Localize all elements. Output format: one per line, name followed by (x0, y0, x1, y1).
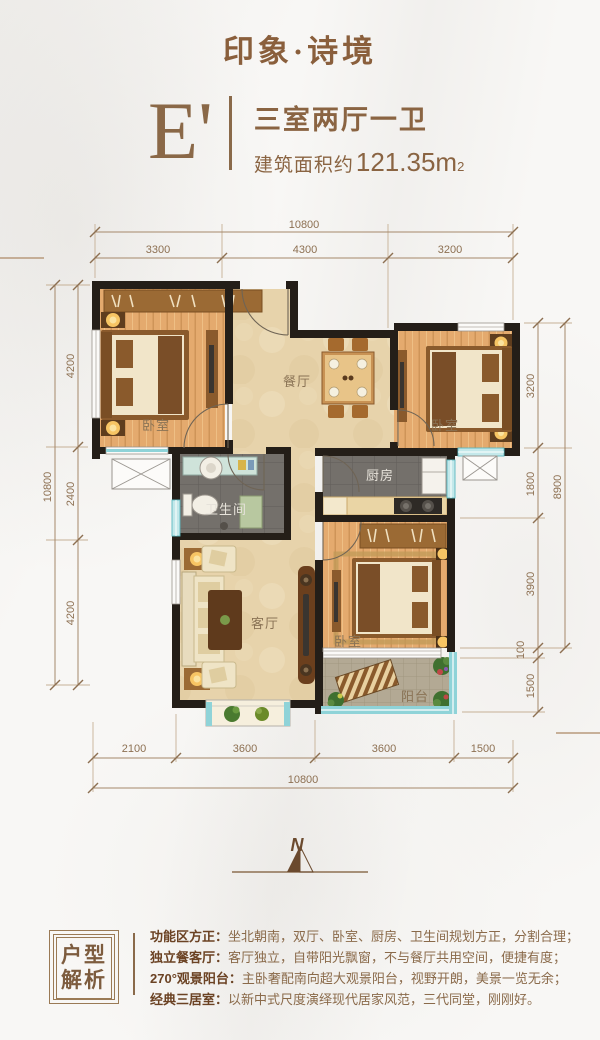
dim-top-seg3: 3200 (438, 244, 462, 256)
dim-right-seg5: 1500 (525, 674, 537, 698)
analysis-divider (133, 933, 135, 995)
analysis-item-label: 270°观景阳台： (150, 971, 242, 986)
floor-plan-svg: 10800 3300 4300 3200 10800 4200 (0, 200, 600, 900)
analysis-item-label: 经典三居室： (150, 992, 228, 1007)
poster-page: 印象·诗境 E' 三室两厅一卫 建筑面积约 121.35m 2 (0, 0, 600, 1040)
analysis-item: 独立餐客厅：客厅独立，自带阳光飘窗，不与餐厅共用空间，便捷有度； (150, 947, 585, 968)
dim-left-total: 10800 (42, 472, 54, 503)
room-label-living: 客厅 (251, 616, 279, 631)
dim-top-seg2: 4300 (293, 244, 317, 256)
north-arrow-icon: N (232, 835, 368, 872)
analysis-item-text: 客厅独立，自带阳光飘窗，不与餐厅共用空间，便捷有度； (228, 950, 566, 965)
analysis-item-text: 坐北朝南，双厅、卧室、厨房、卫生间规划方正，分割合理； (228, 929, 579, 944)
dim-bottom-total: 10800 (288, 774, 319, 786)
area-superscript: 2 (457, 159, 464, 174)
room-label-bedroom-nw: 卧室 (142, 418, 170, 433)
dim-bottom-seg1: 2100 (122, 743, 146, 755)
ac-platform-box (112, 459, 170, 489)
dim-right-seg3: 3900 (525, 572, 537, 596)
dimension-bottom: 2100 3600 3600 1500 10800 (88, 714, 518, 793)
dim-top-total: 10800 (289, 219, 320, 231)
room-label-bedroom-ne: 卧室 (431, 418, 459, 433)
analysis-title-line1: 户型 (61, 943, 107, 968)
dim-left-seg3: 4200 (65, 601, 77, 625)
analysis-item: 270°观景阳台：主卧奢配南向超大观景阳台，视野开朗，美景一览无余； (150, 968, 585, 989)
dim-right-total: 8900 (552, 475, 564, 499)
project-title: 印象·诗境 (0, 26, 600, 71)
dim-right-seg2: 1800 (525, 472, 537, 496)
analysis-item-label: 功能区方正： (150, 929, 228, 944)
analysis-item-text: 以新中式尺度演绎现代居家风范，三代同堂，刚刚好。 (228, 992, 540, 1007)
analysis-item-label: 独立餐客厅： (150, 950, 228, 965)
shaft-box (463, 456, 497, 480)
dim-bottom-seg4: 1500 (471, 743, 495, 755)
dim-bottom-seg2: 3600 (233, 743, 257, 755)
spec-divider (229, 96, 232, 170)
room-label-dining: 餐厅 (283, 374, 311, 389)
dim-bottom-seg3: 3600 (372, 743, 396, 755)
area-prefix: 建筑面积约 (254, 150, 354, 177)
room-label-balcony: 阳台 (401, 689, 429, 704)
dim-left-seg1: 4200 (65, 354, 77, 378)
analysis-title-line2: 解析 (61, 968, 107, 993)
layout-type: 三室两厅一卫 (254, 98, 464, 137)
bay-window-living (206, 700, 290, 726)
building-area: 建筑面积约 121.35m 2 (254, 147, 464, 178)
room-label-bathroom: 卫生间 (205, 502, 247, 517)
dim-right-seg4: 100 (515, 641, 527, 659)
analysis-title-box: 户型 解析 (49, 930, 119, 1004)
analysis-item: 功能区方正：坐北朝南，双厅、卧室、厨房、卫生间规划方正，分割合理； (150, 926, 585, 947)
unit-code: E' (148, 92, 213, 170)
unit-spec: E' 三室两厅一卫 建筑面积约 121.35m 2 (148, 92, 464, 178)
analysis-item: 经典三居室：以新中式尺度演绎现代居家风范，三代同堂，刚刚好。 (150, 989, 585, 1010)
analysis-item-text: 主卧奢配南向超大观景阳台，视野开朗，美景一览无余； (242, 971, 567, 986)
dim-right-seg1: 3200 (525, 374, 537, 398)
dimension-left: 10800 4200 2400 4200 (42, 280, 90, 690)
spec-text: 三室两厅一卫 建筑面积约 121.35m 2 (254, 92, 464, 178)
room-label-kitchen: 厨房 (366, 468, 394, 483)
analysis-items: 功能区方正：坐北朝南，双厅、卧室、厨房、卫生间规划方正，分割合理； 独立餐客厅：… (150, 926, 585, 1010)
area-value: 121.35m (356, 147, 457, 178)
room-label-master: 卧室 (334, 634, 362, 649)
dim-left-seg2: 2400 (65, 482, 77, 506)
dim-top-seg1: 3300 (146, 244, 170, 256)
